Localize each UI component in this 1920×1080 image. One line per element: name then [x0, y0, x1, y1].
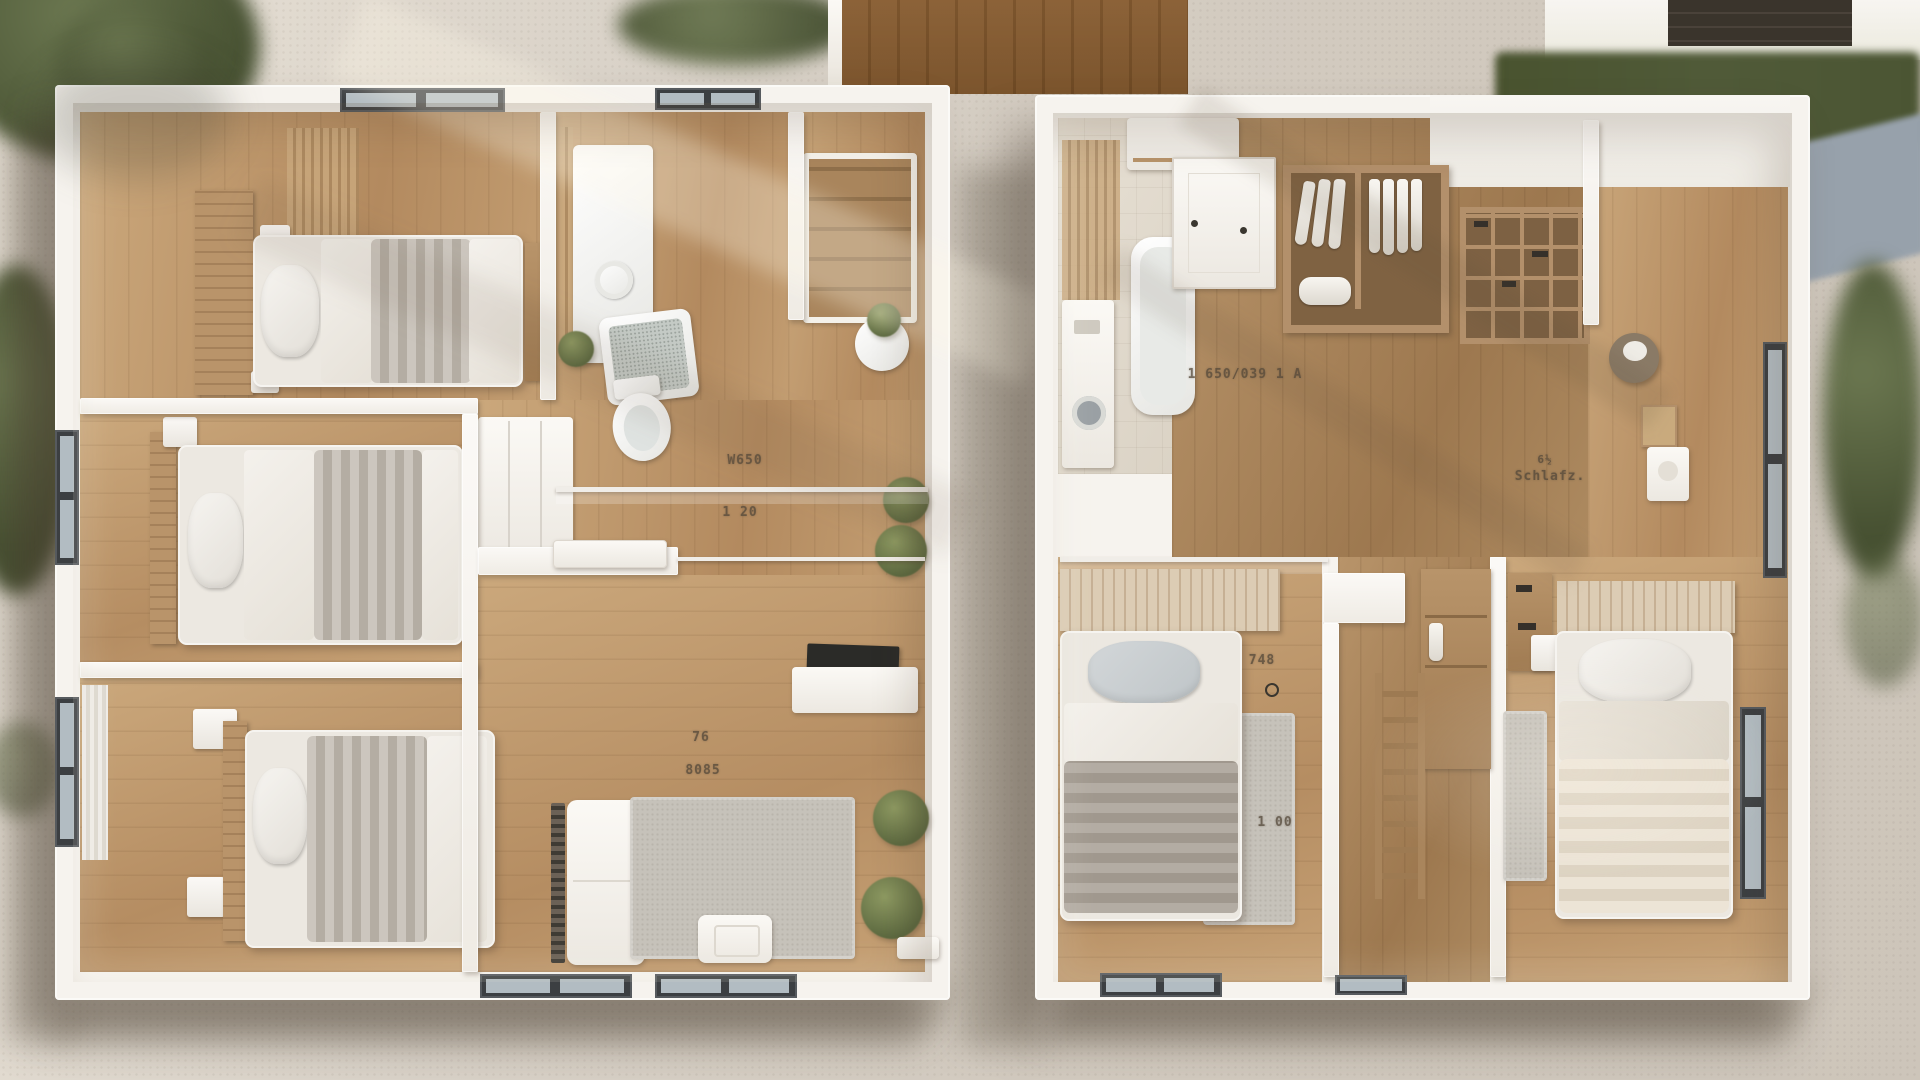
floor-label: Schlafz. — [1495, 469, 1605, 484]
hall-closet — [1421, 569, 1491, 769]
area-rug — [1503, 711, 1547, 881]
folded-bedding — [1299, 277, 1351, 305]
headboard — [195, 190, 253, 395]
window — [1100, 973, 1222, 997]
hanging-garment — [1411, 179, 1422, 251]
plant — [873, 790, 929, 846]
window — [1763, 342, 1787, 578]
wood-boardwalk — [842, 0, 1188, 94]
floor-label: 1 650/039 1 A — [1155, 367, 1335, 382]
floor-label: W650 — [700, 453, 790, 468]
window — [480, 974, 632, 998]
open-wardrobe — [1283, 165, 1449, 333]
closet-shelf — [1425, 615, 1487, 618]
decor-ladder — [1375, 673, 1425, 899]
floor-label: 1 20 — [695, 505, 785, 520]
counter-items — [1074, 320, 1100, 334]
wall-top-band — [1430, 95, 1790, 187]
duvet — [371, 239, 471, 383]
tv-console — [792, 667, 918, 713]
wall-stub — [1323, 573, 1405, 623]
door-handle — [1240, 227, 1247, 234]
bed — [253, 235, 523, 387]
bed-sheet — [1559, 701, 1729, 761]
glass-partition — [556, 492, 928, 504]
plant — [558, 331, 594, 367]
interior-wall — [1583, 120, 1599, 325]
left-unit-floorplan: W650 1 20 76 8085 — [55, 85, 950, 1000]
bed — [1060, 631, 1242, 921]
pouf-top — [1623, 341, 1647, 361]
bed-sheet — [1064, 703, 1238, 763]
hanging-garment — [1383, 179, 1394, 255]
window — [55, 697, 79, 847]
pillow — [1579, 639, 1691, 703]
plant — [867, 303, 901, 337]
interior-wall — [788, 112, 804, 320]
hanging-garment — [1429, 623, 1443, 661]
slat-bench — [551, 803, 565, 963]
nightstand — [163, 417, 197, 447]
ceiling-light-icon — [1265, 683, 1279, 697]
shelf-item — [1516, 585, 1532, 592]
window — [55, 430, 79, 565]
duvet — [307, 736, 427, 942]
bed-sheet — [469, 239, 519, 383]
coffee-table — [698, 915, 772, 963]
laundry-counter — [1062, 300, 1114, 468]
interior-wall — [80, 662, 478, 678]
shelf-item — [1518, 623, 1536, 630]
plant — [875, 525, 927, 577]
right-unit-floorplan: 1 650/039 1 A 6½ Schlafz. 748 1 00 — [1035, 95, 1810, 1000]
toilet — [603, 373, 681, 469]
bathroom-wood-screen — [1062, 140, 1120, 300]
neighbor-building-wing — [1852, 0, 1920, 58]
shelf-rows — [809, 159, 911, 317]
headboard — [150, 432, 176, 644]
table-dish — [1658, 461, 1678, 481]
table-inlay — [714, 925, 760, 957]
shelf-item — [1474, 221, 1488, 227]
pillow — [1088, 641, 1200, 703]
floor-label: 76 — [661, 730, 741, 745]
door-handle — [1191, 220, 1198, 227]
bathroom-wood-screen — [559, 127, 573, 359]
tree-shadow-on-building — [40, 55, 230, 180]
interior-wall — [540, 112, 556, 400]
nightstand — [187, 877, 225, 917]
hanging-garment — [1328, 179, 1346, 250]
pillow — [253, 768, 307, 864]
storage-box — [1641, 405, 1677, 447]
grass-right-low — [1845, 552, 1920, 687]
cabinet-seam — [508, 421, 510, 558]
washer-door — [1072, 396, 1106, 430]
door-inset — [1188, 173, 1260, 273]
window — [340, 88, 505, 112]
planter-box — [897, 937, 939, 959]
duvet — [314, 450, 422, 640]
bed-sheet — [422, 450, 458, 640]
bed — [178, 445, 463, 645]
gap-cast-shadow — [960, 168, 1040, 1048]
cabinet-seam — [540, 421, 542, 558]
sliding-door-panel — [553, 540, 667, 568]
bed-sheet — [244, 450, 314, 640]
cubby-shelf — [1460, 207, 1590, 344]
headboard — [1557, 581, 1735, 633]
neighbor-roof-panel — [1668, 0, 1853, 46]
window — [655, 88, 761, 110]
interior-wall — [1323, 623, 1339, 977]
bed — [245, 730, 495, 948]
window — [1335, 975, 1407, 995]
scene-floorplan-render: W650 1 20 76 8085 — [0, 0, 1920, 1080]
floor-label: 6½ — [1515, 453, 1575, 466]
hanging-garment — [1369, 179, 1380, 253]
bed-sheet — [321, 239, 373, 383]
side-table — [1647, 447, 1689, 501]
pillow — [261, 265, 319, 357]
curtain-panel — [82, 685, 108, 860]
entry-door-panel — [1172, 157, 1276, 289]
interior-wall — [462, 414, 478, 972]
bed — [1555, 631, 1733, 919]
headboard — [1060, 569, 1280, 631]
hanging-garment — [1397, 179, 1408, 253]
closet-shelf — [1425, 665, 1487, 668]
floor-label: 1 00 — [1240, 815, 1310, 830]
tree-right — [1823, 262, 1920, 577]
plant — [861, 877, 923, 939]
boardwalk-curb — [828, 0, 842, 95]
sink-basin — [595, 261, 633, 299]
interior-wall — [80, 398, 478, 414]
headboard — [223, 721, 247, 941]
floor-label: 8085 — [663, 763, 743, 778]
glass-partition-track — [678, 557, 925, 561]
shelf-item — [1532, 251, 1548, 257]
pillow — [188, 493, 243, 588]
wardrobe-divider — [1355, 173, 1361, 309]
duvet — [1559, 759, 1729, 913]
open-shelf-cabinet — [803, 153, 917, 323]
window — [1740, 707, 1766, 899]
bed-sheet — [427, 736, 487, 942]
window — [655, 974, 797, 998]
shelf-item — [1502, 281, 1516, 287]
duvet — [1064, 761, 1238, 913]
floor-label: 748 — [1227, 653, 1297, 668]
